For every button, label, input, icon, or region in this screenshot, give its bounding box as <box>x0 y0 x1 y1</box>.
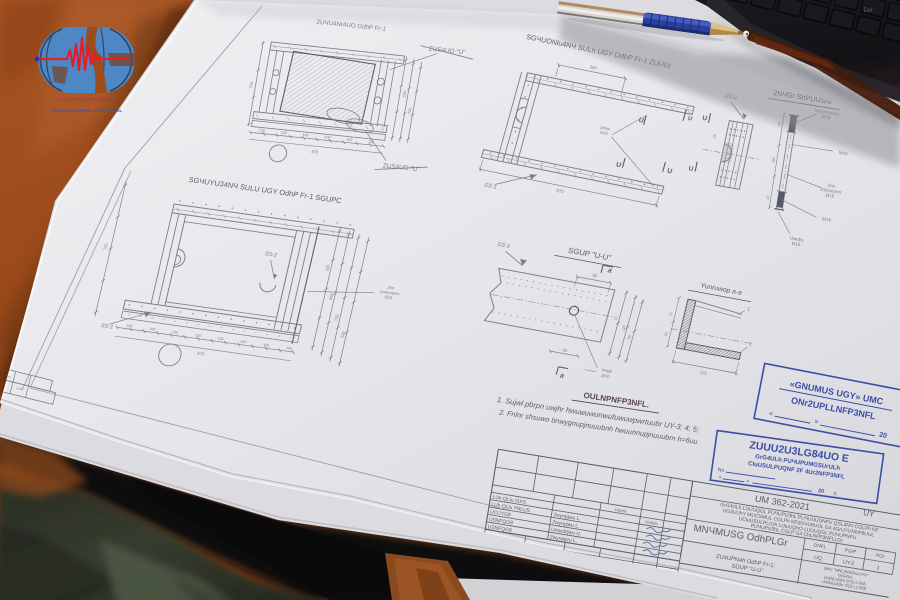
svg-text:100: 100 <box>280 131 287 136</box>
svg-text:100: 100 <box>258 128 265 133</box>
svg-text:p.: p. <box>833 490 838 497</box>
svg-text:100: 100 <box>126 324 133 329</box>
svg-text:20: 20 <box>817 488 824 495</box>
svg-text:Del: Del <box>863 8 872 14</box>
svg-text:100: 100 <box>263 343 270 348</box>
svg-text:100: 100 <box>324 135 331 140</box>
svg-text:100: 100 <box>240 340 247 345</box>
svg-text:UGJUUhY MUCSMULNhP3UL: UGJUUhY MUCSMULNhP3UL <box>58 97 117 102</box>
svg-text:UQ: UQ <box>814 555 823 562</box>
svg-text:UY: UY <box>863 508 876 519</box>
svg-text:100: 100 <box>302 133 309 138</box>
svg-text:100: 100 <box>346 137 353 142</box>
svg-text:100: 100 <box>172 330 179 335</box>
svg-text:100: 100 <box>149 327 156 332</box>
svg-text:100: 100 <box>217 336 224 341</box>
svg-text:100: 100 <box>194 333 201 338</box>
svg-text:20: 20 <box>878 432 887 440</box>
svg-text:PUrSGQUQrNhP3UL 4Ur2NhP3NhL: PUrSGQUQrNhP3UL 4Ur2NhP3NhL <box>52 108 123 113</box>
svg-text:40: 40 <box>766 195 771 200</box>
svg-text:No: No <box>717 467 724 474</box>
svg-text:100: 100 <box>286 346 293 351</box>
